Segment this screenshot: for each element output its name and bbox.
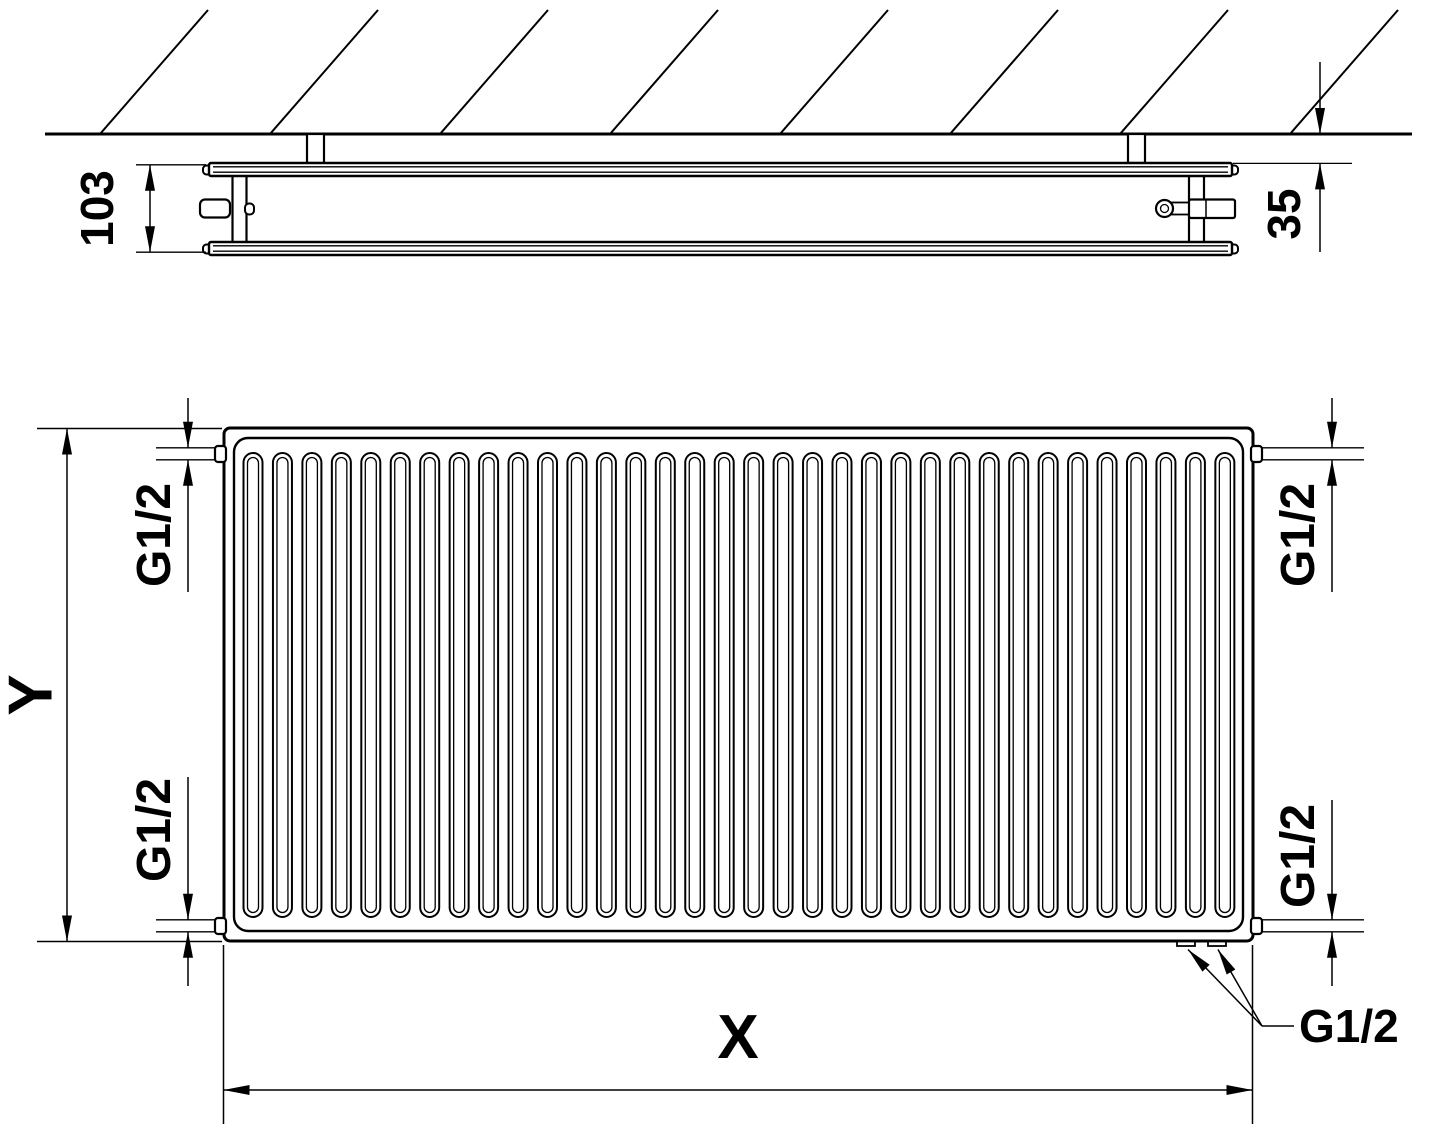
fin-channel-inner [277, 458, 288, 913]
fin-channel [420, 453, 439, 917]
hatch-line [950, 10, 1058, 134]
fin-channel-inner [1131, 458, 1142, 913]
arrowhead [183, 422, 193, 448]
fin-channel [273, 453, 292, 917]
fin-channel-inner [866, 458, 877, 913]
connection-label-top-left: G1/2 [128, 483, 181, 587]
fin-channel-inner [630, 458, 641, 913]
fin-channel [1068, 453, 1087, 917]
hatch-line [270, 10, 378, 134]
end-header-left [200, 176, 254, 242]
arrowhead [1214, 947, 1236, 975]
dim-label-depth: 103 [71, 170, 123, 247]
dimension-depth-103: 103 [71, 165, 206, 252]
panel-body [209, 242, 1232, 255]
arrowhead [1315, 163, 1325, 189]
outlet-tab [1208, 942, 1226, 947]
fin-channel-inner [778, 458, 789, 913]
hatch-line [780, 10, 888, 134]
dim-label-wall-distance: 35 [1258, 188, 1310, 239]
wall-bracket-right [1128, 134, 1145, 163]
fin-channel [361, 453, 380, 917]
fin-channel [391, 453, 410, 917]
fin-channel-inner [984, 458, 995, 913]
top-view: 103 35 [45, 10, 1412, 255]
fin-channel-inner [571, 458, 582, 913]
connection-collar-top-left [215, 446, 226, 462]
fin-channel-inner [719, 458, 730, 913]
fin-channel [1127, 453, 1146, 917]
arrowhead [183, 894, 193, 920]
fin-channel [1098, 453, 1117, 917]
plug-collar [245, 204, 254, 215]
connection-label-bottom-left: G1/2 [128, 778, 181, 882]
panel-body [209, 163, 1232, 176]
fin-channel [450, 453, 469, 917]
dimension-wall-distance-35: 35 [1233, 62, 1352, 252]
fin-channel-inner [513, 458, 524, 913]
radiator-technical-drawing: 103 35 G1/2 [0, 0, 1433, 1131]
arrowhead [1227, 1085, 1253, 1095]
fin-channel [509, 453, 528, 917]
fin-channel-inner [454, 458, 465, 913]
hatch-line [1120, 10, 1228, 134]
fin-channel [862, 453, 881, 917]
connection-label-top-right: G1/2 [1272, 483, 1325, 587]
fin-channel-inner [365, 458, 376, 913]
fin-channel [980, 453, 999, 917]
arrowhead [62, 429, 72, 455]
fin-channels [244, 453, 1235, 917]
wall-hatch [100, 10, 1398, 134]
fin-channel [803, 453, 822, 917]
connection-collar-bottom-right [1251, 918, 1262, 934]
dim-label-width: X [717, 1003, 758, 1072]
fin-channel [1156, 453, 1175, 917]
hatch-line [1290, 10, 1398, 134]
arrowhead [1315, 108, 1325, 134]
arrowhead [145, 165, 155, 191]
arrowhead [1327, 894, 1337, 920]
fin-channel [626, 453, 645, 917]
dimension-g12-top-left: G1/2 [128, 398, 216, 592]
arrowhead [224, 1085, 250, 1095]
arrowhead [62, 916, 72, 942]
arrowhead [1327, 932, 1337, 958]
dimension-g12-bottom-right: G1/2 [1261, 800, 1364, 986]
fin-channel [1215, 453, 1234, 917]
fin-channel [891, 453, 910, 917]
connection-collar-bottom-left [215, 918, 226, 934]
fin-channel-inner [424, 458, 435, 913]
fin-channel-inner [1190, 458, 1201, 913]
fin-channel-inner [1160, 458, 1171, 913]
hatch-line [100, 10, 208, 134]
fin-channel [715, 453, 734, 917]
fin-channel-inner [542, 458, 553, 913]
fin-channel [833, 453, 852, 917]
front-view: G1/2 G1/2 G1/2 [0, 398, 1399, 1124]
dimension-g12-bottom-left: G1/2 [128, 777, 216, 986]
fin-channel-inner [336, 458, 347, 913]
hatch-line [610, 10, 718, 134]
fin-channel-inner [954, 458, 965, 913]
fin-channel [332, 453, 351, 917]
fin-channel [567, 453, 586, 917]
fin-channel [685, 453, 704, 917]
fin-channel [538, 453, 557, 917]
fin-channel [950, 453, 969, 917]
fin-channel-inner [837, 458, 848, 913]
fin-channel-inner [1013, 458, 1024, 913]
connection-label-bottom-outlets: G1/2 [1299, 1000, 1399, 1052]
fin-channel-inner [248, 458, 259, 913]
fin-channel [774, 453, 793, 917]
fin-channel-inner [1072, 458, 1083, 913]
dim-label-height: Y [0, 674, 66, 715]
end-header-right [1156, 176, 1235, 242]
fin-channel [597, 453, 616, 917]
arrowhead [145, 226, 155, 252]
fin-channel-inner [807, 458, 818, 913]
fin-channel-inner [395, 458, 406, 913]
valve-body-right [1189, 200, 1235, 219]
fin-channel-inner [925, 458, 936, 913]
panel-top [203, 163, 1238, 176]
outlet-tab [1177, 942, 1195, 947]
vent-screw-center [1161, 205, 1169, 213]
wall-bracket-left [307, 134, 324, 163]
fin-channel-inner [483, 458, 494, 913]
bottom-outlets: G1/2 [1177, 942, 1399, 1053]
connection-collar-top-right [1251, 446, 1262, 462]
dimension-width-X: X [224, 945, 1253, 1124]
fin-channel [1009, 453, 1028, 917]
panel-bottom [203, 242, 1238, 255]
fin-channel [921, 453, 940, 917]
plug-left [200, 200, 230, 218]
fin-channel [479, 453, 498, 917]
hatch-line [440, 10, 548, 134]
fin-channel-inner [1219, 458, 1230, 913]
arrowhead [183, 460, 193, 486]
fin-channel-inner [601, 458, 612, 913]
fin-channel-inner [1102, 458, 1113, 913]
fin-channel [656, 453, 675, 917]
fin-channel-inner [748, 458, 759, 913]
fin-channel-inner [1043, 458, 1054, 913]
arrowhead [183, 932, 193, 958]
fin-channel [244, 453, 263, 917]
fin-channel [302, 453, 321, 917]
radiator-front-plate [234, 438, 1243, 931]
dimension-g12-top-right: G1/2 [1261, 398, 1364, 592]
connection-label-bottom-right: G1/2 [1272, 804, 1325, 908]
fin-channel [1039, 453, 1058, 917]
fin-channel [1186, 453, 1205, 917]
fin-channel [744, 453, 763, 917]
arrowhead [1327, 460, 1337, 486]
arrowhead [1327, 422, 1337, 448]
fin-channel-inner [689, 458, 700, 913]
fin-channel-inner [660, 458, 671, 913]
radiator-outer-frame [224, 428, 1253, 941]
fin-channel-inner [306, 458, 317, 913]
fin-channel-inner [895, 458, 906, 913]
